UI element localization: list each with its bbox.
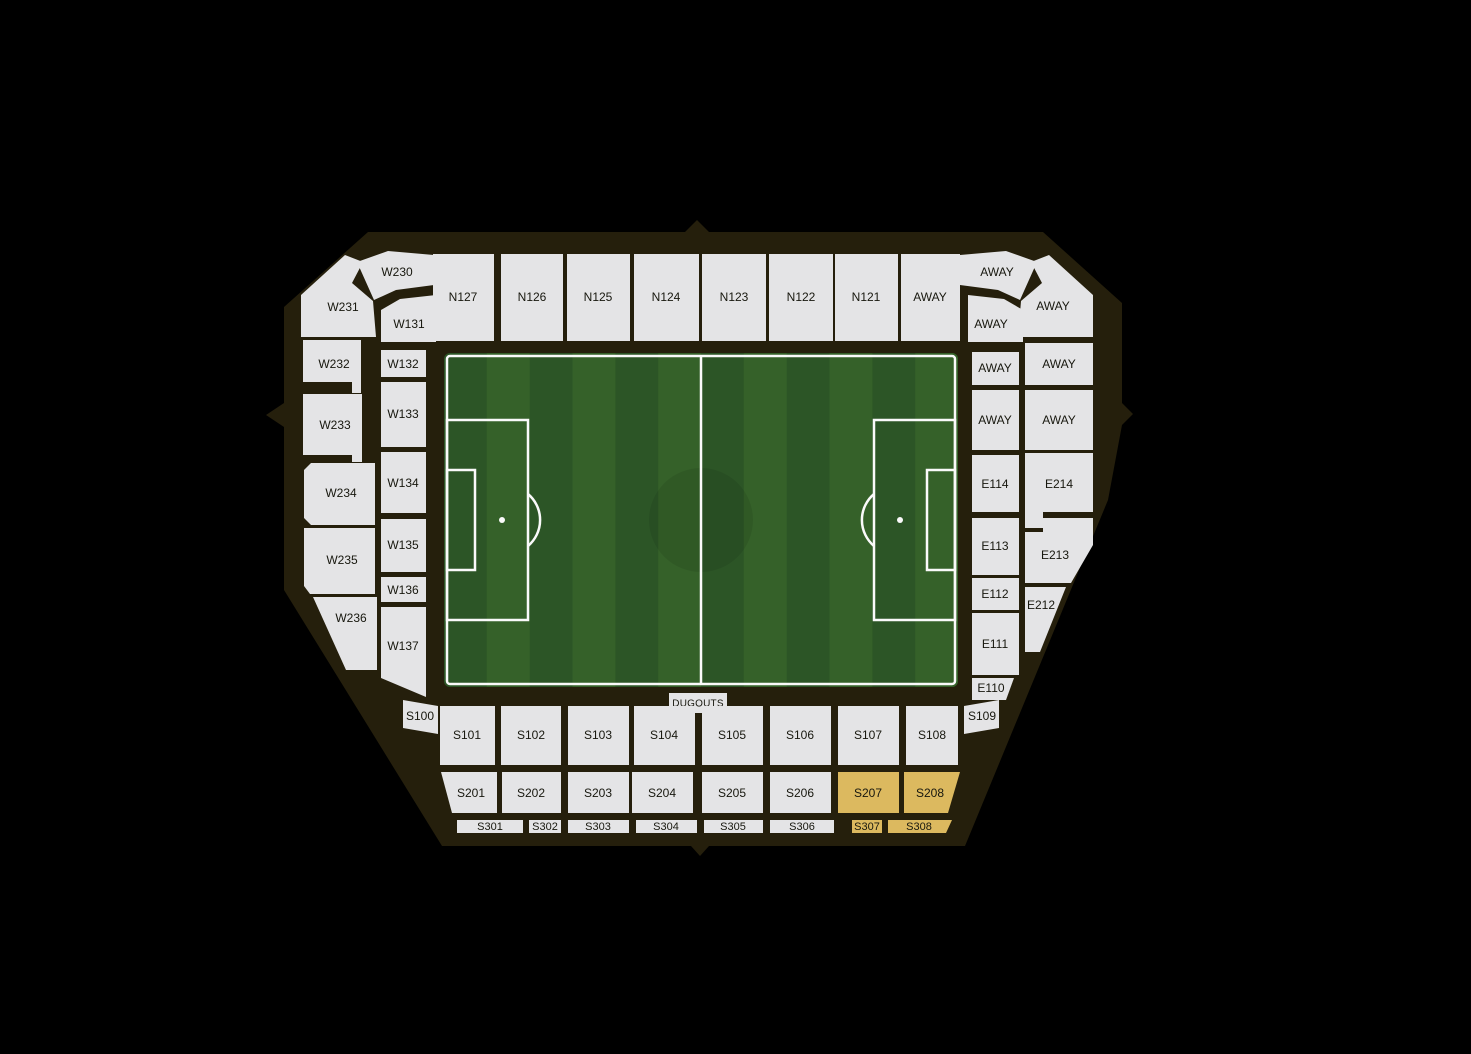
section-w134[interactable]: W134 (381, 452, 426, 513)
svg-text:AWAY: AWAY (980, 265, 1014, 279)
svg-text:W135: W135 (387, 538, 419, 552)
svg-text:S208: S208 (916, 786, 944, 800)
svg-text:E114: E114 (981, 477, 1008, 491)
section-e114[interactable]: E114 (972, 455, 1019, 512)
section-n127[interactable]: N127 (433, 254, 494, 341)
svg-text:S304: S304 (653, 821, 679, 833)
section-s307[interactable]: S307 (852, 820, 882, 833)
svg-text:S102: S102 (517, 728, 545, 742)
section-s105[interactable]: S105 (702, 706, 763, 765)
pitch (444, 353, 958, 687)
svg-text:S103: S103 (584, 728, 612, 742)
svg-text:S107: S107 (854, 728, 882, 742)
svg-text:W137: W137 (387, 639, 419, 653)
svg-text:S302: S302 (532, 821, 558, 833)
svg-text:W231: W231 (327, 300, 359, 314)
section-s102[interactable]: S102 (501, 706, 561, 765)
svg-text:AWAY: AWAY (978, 361, 1012, 375)
section-n122[interactable]: N122 (769, 254, 833, 341)
section-n121[interactable]: N121 (835, 254, 898, 341)
svg-text:W136: W136 (387, 583, 419, 597)
svg-text:N126: N126 (518, 290, 547, 304)
section-n126[interactable]: N126 (501, 254, 563, 341)
section-w132[interactable]: W132 (381, 350, 426, 377)
section-w235[interactable]: W235 (304, 528, 375, 594)
svg-text:W133: W133 (387, 407, 419, 421)
section-s205[interactable]: S205 (702, 772, 763, 813)
section-e111[interactable]: E111 (972, 613, 1019, 675)
section-away-east-outer-1[interactable]: AWAY (1025, 343, 1093, 385)
section-s303[interactable]: S303 (568, 820, 629, 833)
svg-text:S100: S100 (406, 709, 434, 723)
svg-text:E212: E212 (1027, 598, 1055, 612)
svg-text:W236: W236 (335, 611, 367, 625)
section-s202[interactable]: S202 (502, 772, 561, 813)
svg-text:N121: N121 (852, 290, 881, 304)
section-away-north[interactable]: AWAY (901, 254, 960, 341)
penalty-spot-right (897, 517, 903, 523)
svg-text:S204: S204 (648, 786, 676, 800)
svg-text:S305: S305 (720, 821, 746, 833)
svg-text:S106: S106 (786, 728, 814, 742)
section-e112[interactable]: E112 (972, 578, 1019, 610)
svg-text:S306: S306 (789, 821, 815, 833)
svg-text:S105: S105 (718, 728, 746, 742)
svg-text:N123: N123 (720, 290, 749, 304)
section-s108[interactable]: S108 (906, 706, 958, 765)
svg-text:S101: S101 (453, 728, 481, 742)
svg-text:AWAY: AWAY (1042, 357, 1076, 371)
svg-text:E111: E111 (982, 637, 1009, 651)
section-w135[interactable]: W135 (381, 519, 426, 572)
svg-text:W235: W235 (326, 553, 358, 567)
section-away-east-outer-2[interactable]: AWAY (1025, 390, 1093, 450)
svg-text:S203: S203 (584, 786, 612, 800)
seat-map-canvas: N127 N126 N125 N124 N123 N122 N121 AWAY … (0, 0, 1471, 1054)
svg-text:W134: W134 (387, 476, 419, 490)
svg-text:N125: N125 (584, 290, 613, 304)
svg-text:N127: N127 (449, 290, 478, 304)
svg-text:S308: S308 (906, 821, 932, 833)
svg-text:S202: S202 (517, 786, 545, 800)
svg-text:S307: S307 (854, 821, 880, 833)
svg-text:W230: W230 (381, 265, 413, 279)
svg-text:S207: S207 (854, 786, 882, 800)
svg-text:S205: S205 (718, 786, 746, 800)
section-s106[interactable]: S106 (770, 706, 831, 765)
section-s306[interactable]: S306 (770, 820, 834, 833)
section-s207[interactable]: S207 (838, 772, 899, 813)
section-s206[interactable]: S206 (770, 772, 831, 813)
section-s107[interactable]: S107 (838, 706, 899, 765)
svg-text:AWAY: AWAY (978, 413, 1012, 427)
svg-text:E112: E112 (981, 587, 1008, 601)
section-s204[interactable]: S204 (632, 772, 693, 813)
section-s101[interactable]: S101 (440, 706, 495, 765)
section-n125[interactable]: N125 (567, 254, 630, 341)
section-s308[interactable]: S308 (888, 820, 952, 833)
section-w133[interactable]: W133 (381, 382, 426, 447)
section-n124[interactable]: N124 (634, 254, 699, 341)
svg-text:E214: E214 (1045, 477, 1073, 491)
svg-text:W233: W233 (319, 418, 351, 432)
svg-text:AWAY: AWAY (1036, 299, 1070, 313)
section-s103[interactable]: S103 (568, 706, 629, 765)
svg-text:S206: S206 (786, 786, 814, 800)
svg-text:S201: S201 (457, 786, 485, 800)
svg-text:W131: W131 (393, 317, 425, 331)
section-w136[interactable]: W136 (381, 577, 426, 602)
section-w234[interactable]: W234 (304, 463, 375, 525)
svg-text:AWAY: AWAY (913, 290, 947, 304)
section-s305[interactable]: S305 (704, 820, 763, 833)
svg-text:W132: W132 (387, 357, 419, 371)
svg-text:E213: E213 (1041, 548, 1069, 562)
section-away-east-inner-2[interactable]: AWAY (972, 390, 1019, 450)
svg-text:W234: W234 (325, 486, 357, 500)
svg-text:E113: E113 (981, 539, 1008, 553)
penalty-spot-left (499, 517, 505, 523)
svg-text:W232: W232 (318, 357, 350, 371)
svg-text:S108: S108 (918, 728, 946, 742)
section-n123[interactable]: N123 (702, 254, 766, 341)
svg-text:S303: S303 (585, 821, 611, 833)
svg-text:N122: N122 (787, 290, 816, 304)
stadium-seat-map: N127 N126 N125 N124 N123 N122 N121 AWAY … (0, 0, 1471, 1054)
section-s302[interactable]: S302 (529, 820, 561, 833)
section-w233[interactable]: W233 (303, 394, 362, 462)
section-s304[interactable]: S304 (636, 820, 697, 833)
svg-text:S301: S301 (477, 821, 503, 833)
svg-text:S109: S109 (968, 709, 996, 723)
section-s301[interactable]: S301 (457, 820, 523, 833)
section-e113[interactable]: E113 (972, 518, 1019, 575)
section-away-east-inner-1[interactable]: AWAY (972, 352, 1019, 385)
svg-text:S104: S104 (650, 728, 678, 742)
svg-text:E110: E110 (977, 681, 1004, 695)
svg-text:N124: N124 (652, 290, 681, 304)
svg-text:AWAY: AWAY (1042, 413, 1076, 427)
svg-text:AWAY: AWAY (974, 317, 1008, 331)
section-s203[interactable]: S203 (568, 772, 629, 813)
section-s104[interactable]: S104 (634, 706, 695, 765)
